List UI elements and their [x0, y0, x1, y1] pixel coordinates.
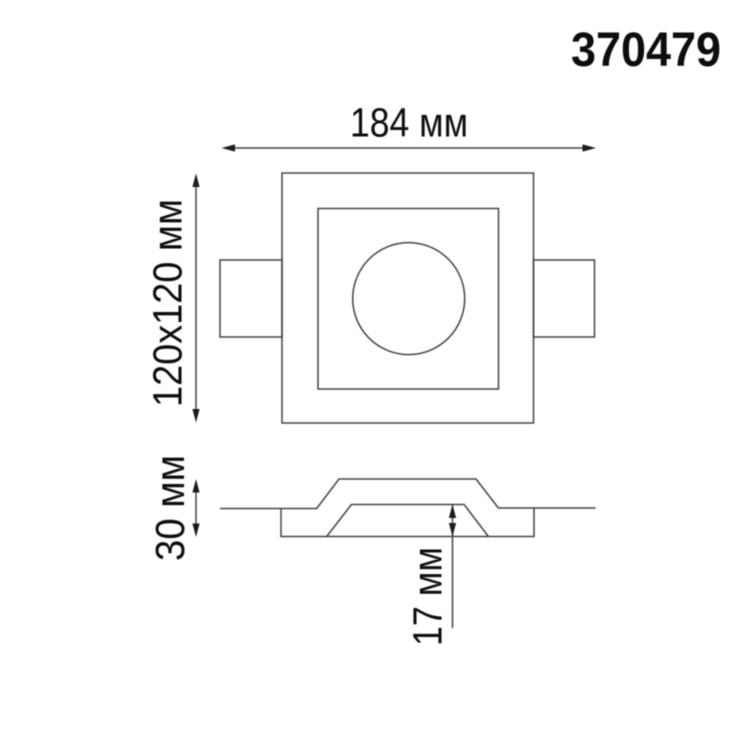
svg-text:370479: 370479 [571, 24, 721, 77]
svg-text:30 мм: 30 мм [147, 455, 193, 561]
svg-text:184 мм: 184 мм [350, 100, 468, 146]
svg-text:17 мм: 17 мм [405, 547, 451, 646]
svg-text:120x120 мм: 120x120 мм [145, 199, 191, 407]
